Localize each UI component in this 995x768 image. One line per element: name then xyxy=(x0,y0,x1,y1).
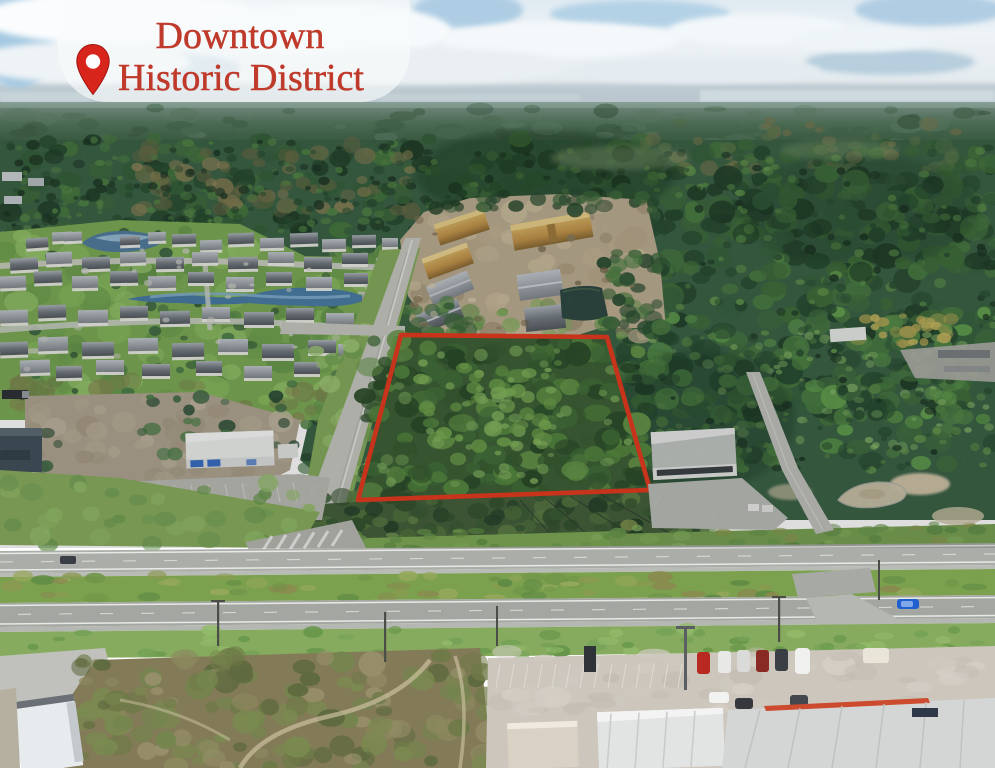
svg-text:Historic District: Historic District xyxy=(118,57,364,99)
svg-text:Downtown: Downtown xyxy=(156,15,325,57)
